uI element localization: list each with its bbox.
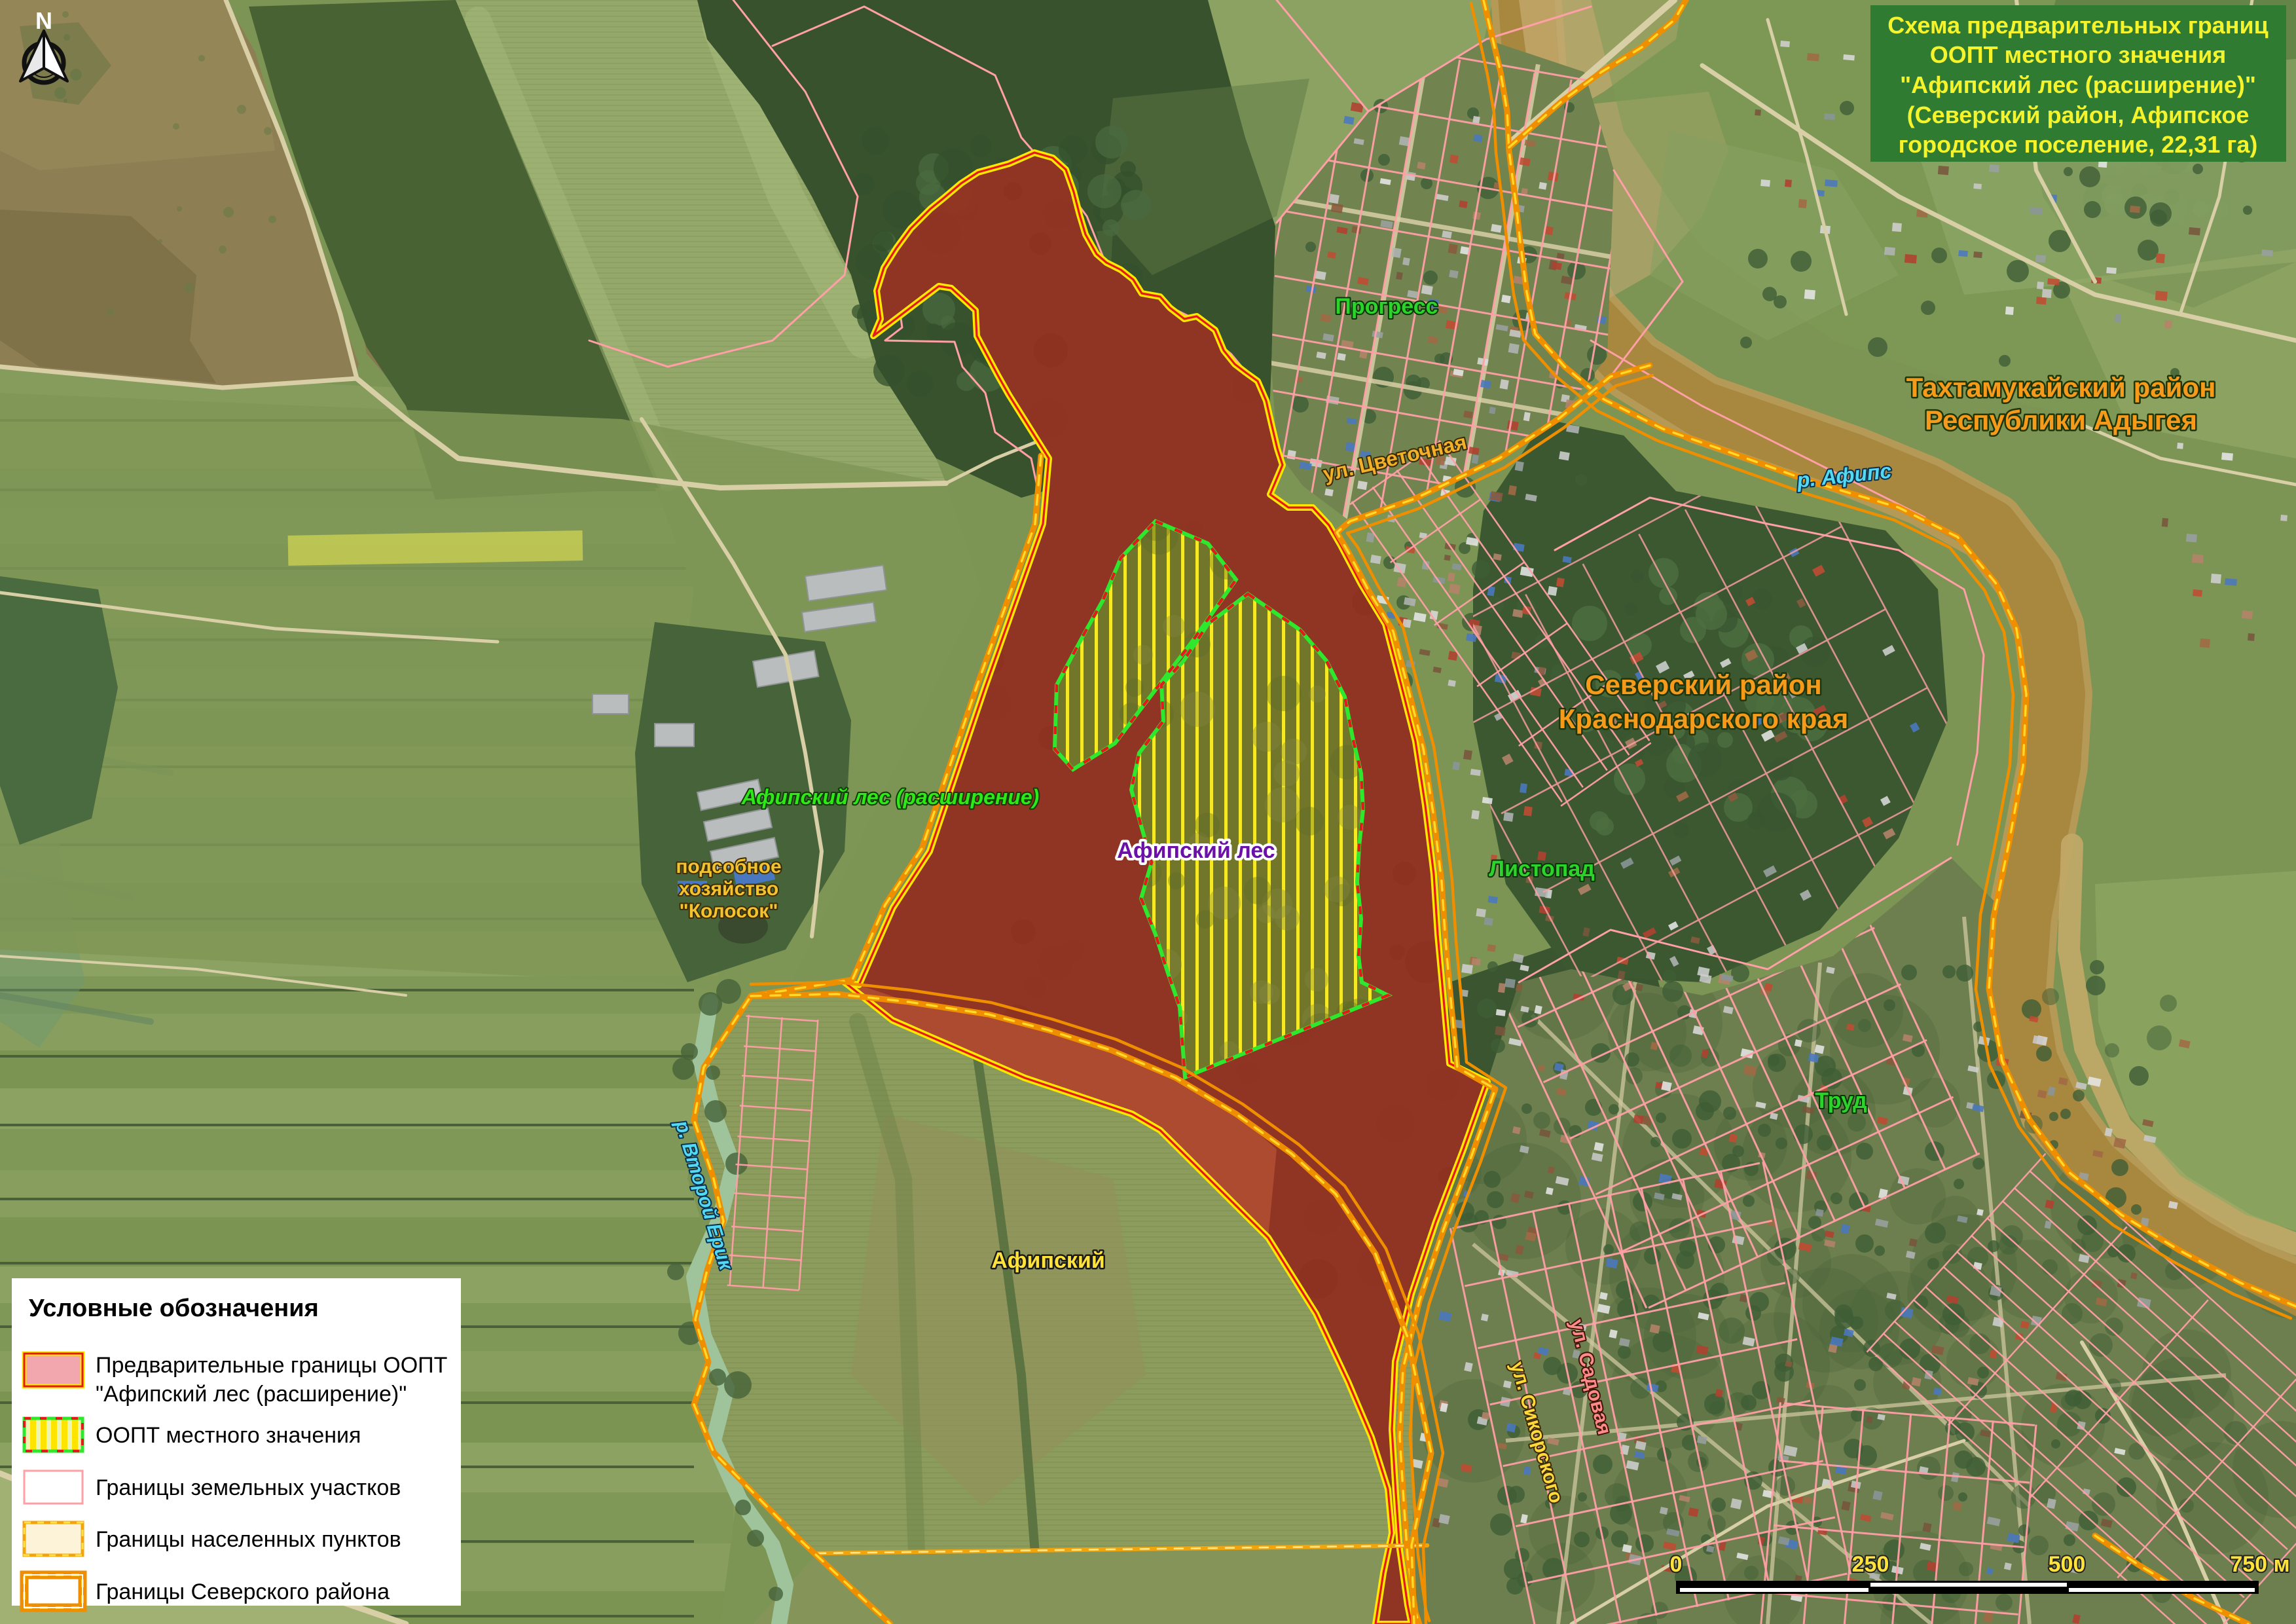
svg-text:Границы населенных пунктов: Границы населенных пунктов xyxy=(96,1527,401,1552)
svg-text:(Северский район, Афипское: (Северский район, Афипское xyxy=(1907,101,2250,128)
svg-text:250: 250 xyxy=(1852,1552,1889,1577)
svg-text:Прогресс: Прогресс xyxy=(1335,294,1438,319)
svg-text:Краснодарского края: Краснодарского края xyxy=(1559,703,1848,734)
svg-text:N: N xyxy=(35,7,52,34)
svg-text:Границы земельных участков: Границы земельных участков xyxy=(96,1475,401,1500)
svg-text:Тахтамукайский район: Тахтамукайский район xyxy=(1906,372,2216,403)
svg-text:"Колосок": "Колосок" xyxy=(680,900,778,922)
svg-text:Республики Адыгея: Республики Адыгея xyxy=(1925,405,2197,435)
svg-text:Условные обозначения: Условные обозначения xyxy=(29,1295,319,1322)
svg-text:Границы Северского района: Границы Северского района xyxy=(96,1579,390,1604)
svg-text:500: 500 xyxy=(2049,1552,2086,1577)
svg-text:подсобное: подсобное xyxy=(676,856,781,877)
svg-text:ООПТ местного значения: ООПТ местного значения xyxy=(1930,41,2227,68)
svg-text:хозяйство: хозяйство xyxy=(679,878,778,900)
svg-text:ООПТ местного значения: ООПТ местного значения xyxy=(96,1423,361,1448)
svg-text:Труд: Труд xyxy=(1815,1088,1867,1113)
svg-text:"Афипский лес (расширение)": "Афипский лес (расширение)" xyxy=(1900,71,2256,98)
svg-text:Афипский: Афипский xyxy=(991,1248,1104,1273)
svg-text:Афипский лес (расширение): Афипский лес (расширение) xyxy=(741,785,1040,809)
svg-text:750 м: 750 м xyxy=(2230,1552,2289,1577)
svg-text:Схема предварительных границ: Схема предварительных границ xyxy=(1887,12,2268,39)
svg-text:"Афипский лес (расширение)": "Афипский лес (расширение)" xyxy=(96,1382,407,1407)
svg-text:Предварительные границы ООПТ: Предварительные границы ООПТ xyxy=(96,1353,447,1378)
svg-text:Афипский лес: Афипский лес xyxy=(1117,838,1275,863)
svg-text:0: 0 xyxy=(1670,1552,1683,1577)
svg-text:Северский район: Северский район xyxy=(1585,669,1822,700)
svg-text:городское поселение, 22,31 га): городское поселение, 22,31 га) xyxy=(1899,131,2258,158)
svg-text:Листопад: Листопад xyxy=(1489,857,1595,881)
